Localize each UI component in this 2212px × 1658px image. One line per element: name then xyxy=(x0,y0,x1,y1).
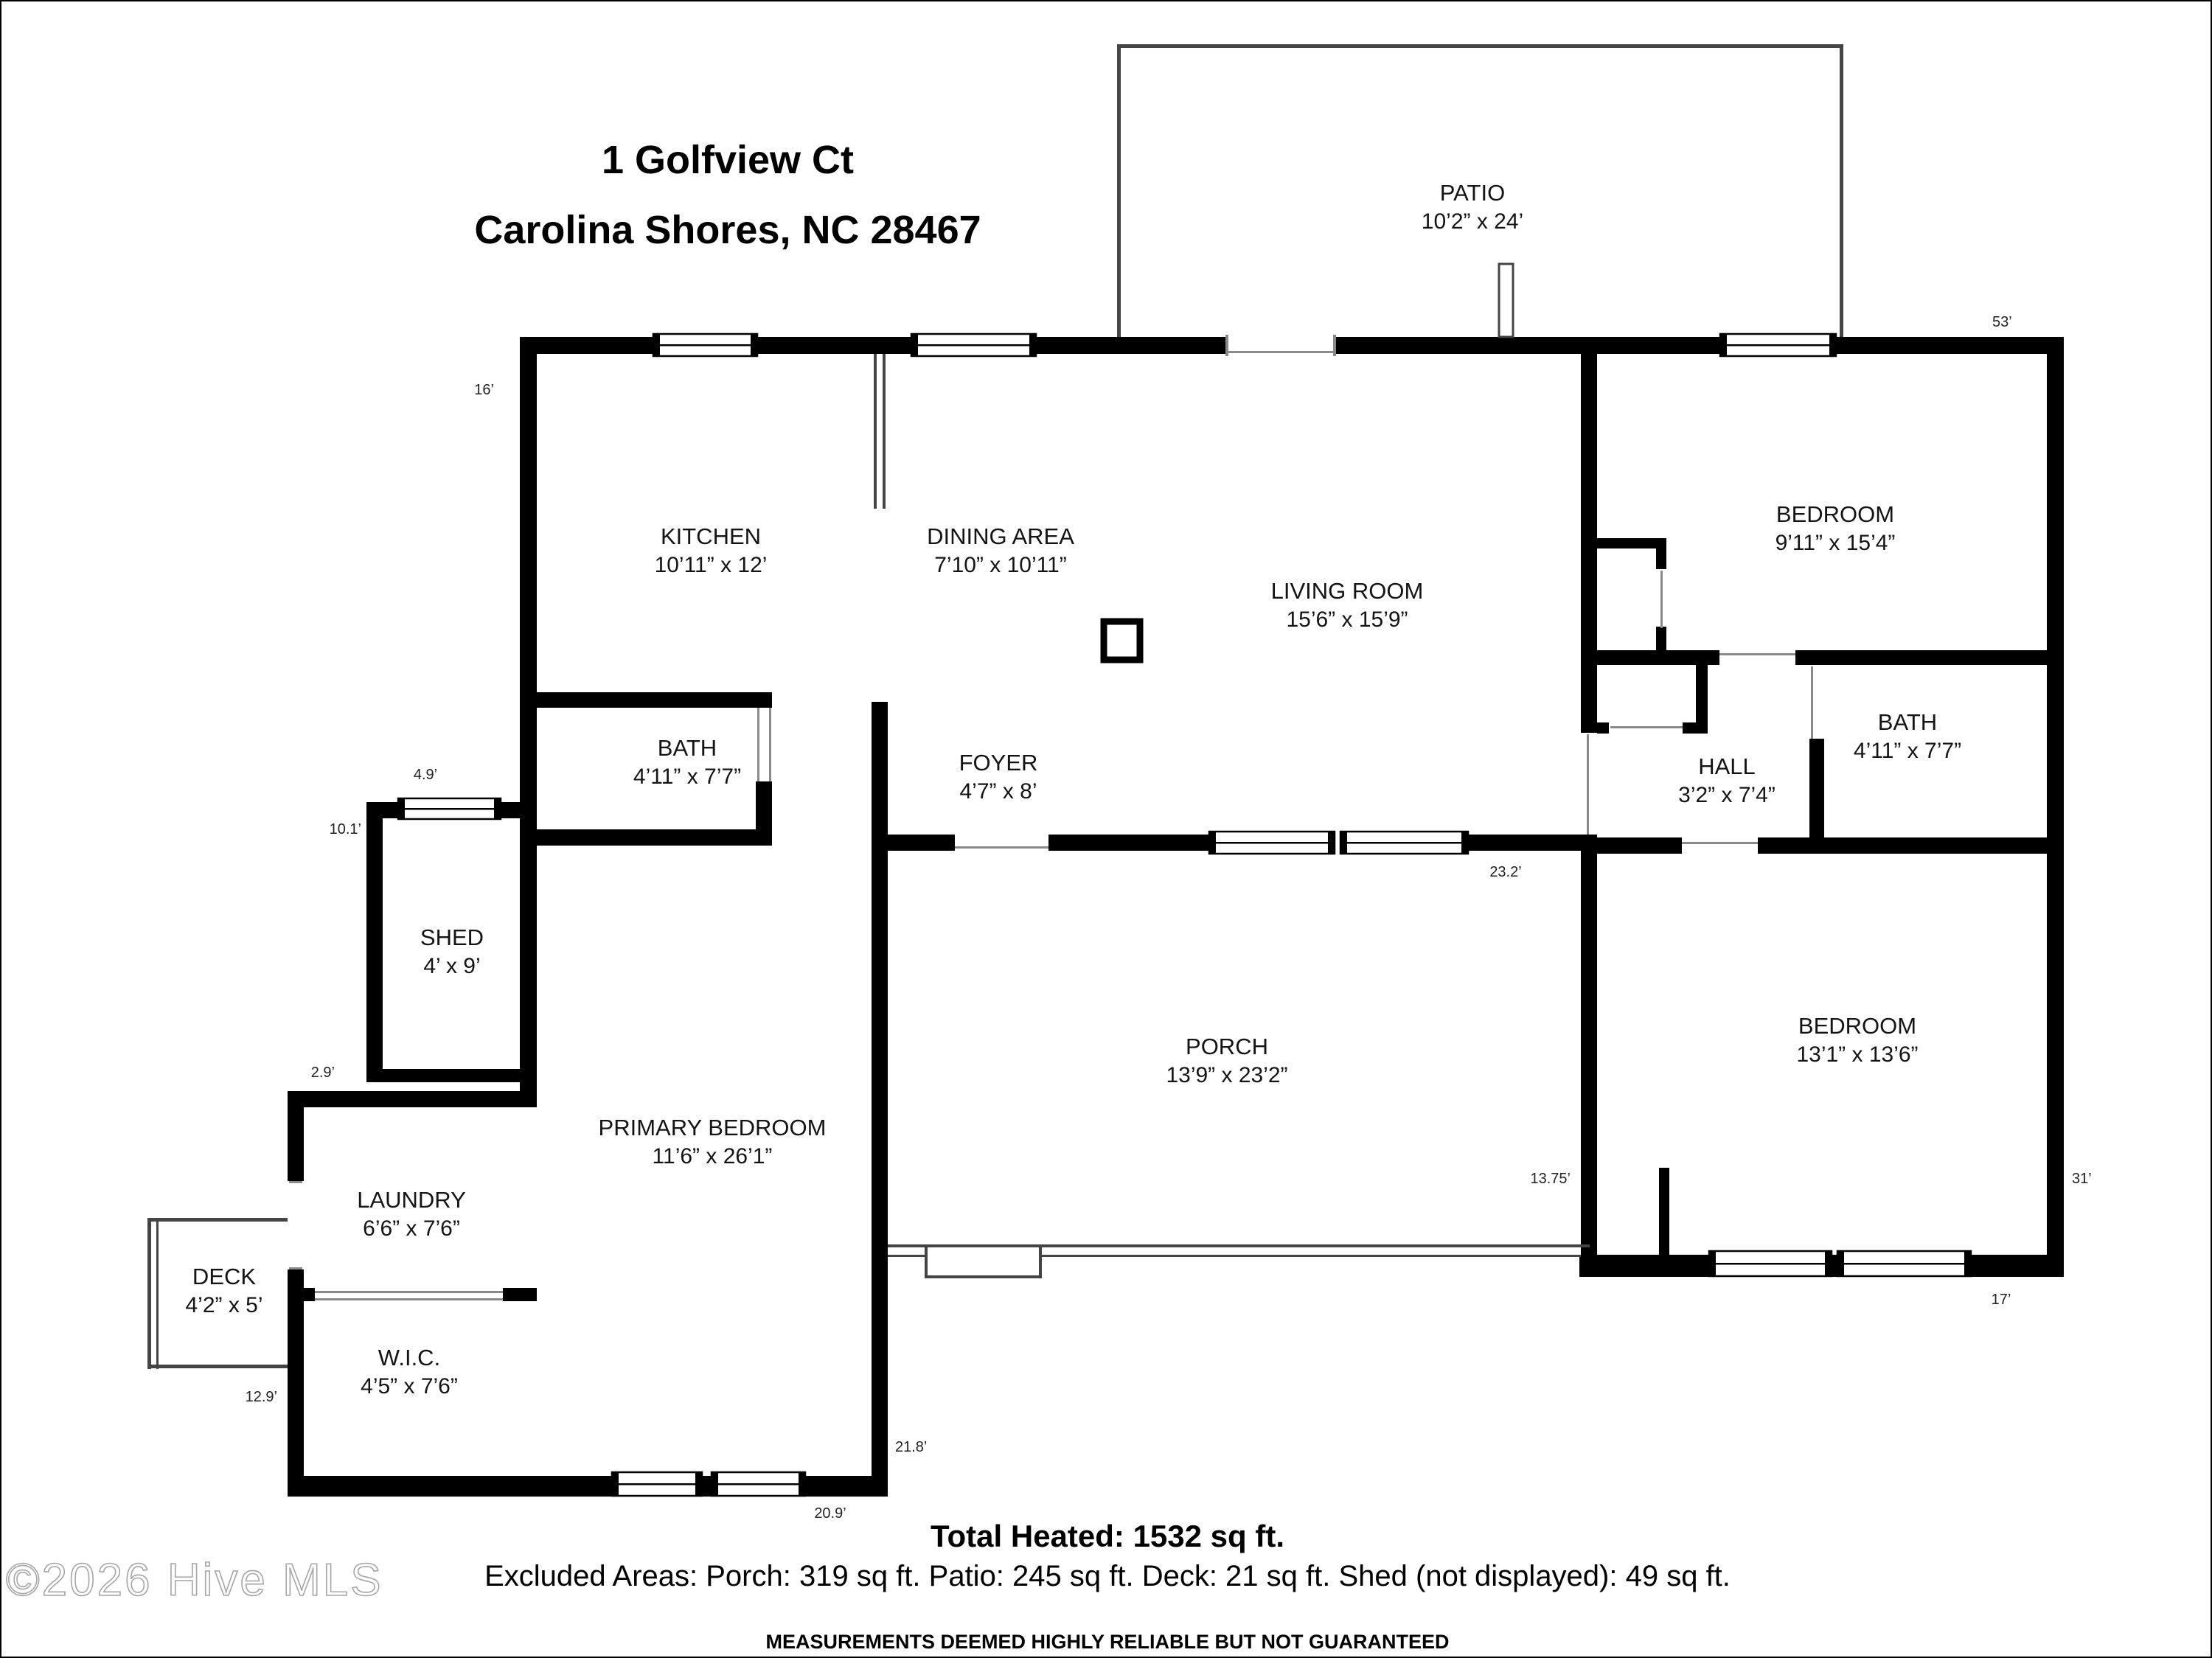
room-dimensions: 10’11” x 12’ xyxy=(655,551,768,579)
room-label-dining-area: DINING AREA7’10” x 10’11” xyxy=(927,522,1074,579)
plan-shape xyxy=(1656,538,1666,569)
plan-shape xyxy=(612,1472,619,1496)
room-name: PATIO xyxy=(1422,178,1523,208)
plan-shape xyxy=(925,1244,928,1278)
room-dimensions: 4’2” x 5’ xyxy=(185,1292,262,1320)
plan-shape xyxy=(1840,44,1843,337)
plan-shape xyxy=(619,1483,695,1485)
plan-shape xyxy=(653,334,660,356)
plan-shape xyxy=(1597,722,1609,734)
plan-shape xyxy=(289,1181,302,1183)
plan-shape xyxy=(1758,837,2047,854)
plan-shape xyxy=(1333,335,1336,356)
dimension-label-2: 4.9’ xyxy=(414,767,437,784)
plan-shape xyxy=(1347,842,1461,844)
plan-shape xyxy=(1048,835,1209,851)
total-heated-text: Total Heated: 1532 sq ft. xyxy=(1,1519,2212,1554)
dimension-label-11: 12.9’ xyxy=(246,1389,277,1406)
plan-shape xyxy=(520,829,772,846)
room-label-primary-bedroom: PRIMARY BEDROOM11’6” x 26’1” xyxy=(599,1113,827,1171)
plan-shape xyxy=(1964,1251,1971,1276)
room-label-foyer: FOYER4’7” x 8’ xyxy=(959,748,1038,806)
plan-shape xyxy=(1468,835,1597,851)
room-dimensions: 10’2” x 24’ xyxy=(1422,208,1523,236)
plan-shape xyxy=(1209,832,1216,854)
plan-shape xyxy=(288,1181,304,1269)
plan-shape xyxy=(1216,842,1328,844)
room-name: LIVING ROOM xyxy=(1271,577,1424,606)
dimension-label-3: 10.1’ xyxy=(330,821,361,838)
room-label-bath-1: BATH4’11” x 7’7” xyxy=(633,734,741,791)
plan-shape xyxy=(1597,538,1666,548)
room-dimensions: 4’7” x 8’ xyxy=(959,778,1038,806)
dimension-label-8: 17’ xyxy=(1992,1292,2011,1309)
disclaimer-text: MEASUREMENTS DEEMED HIGHLY RELIABLE BUT … xyxy=(1,1631,2212,1654)
room-dimensions: 4’11” x 7’7” xyxy=(633,763,741,791)
plan-shape xyxy=(1117,44,1843,48)
plan-shape xyxy=(503,1288,537,1301)
plan-shape xyxy=(718,1483,799,1485)
plan-shape xyxy=(520,692,772,708)
dimension-label-1: 53’ xyxy=(1992,314,2012,331)
plan-shape xyxy=(1659,1168,1669,1255)
room-dimensions: 15’6” x 15’9” xyxy=(1271,606,1424,634)
room-name: W.I.C. xyxy=(361,1343,458,1373)
room-name: BATH xyxy=(1854,708,1961,737)
address-line-1: 1 Golfview Ct xyxy=(474,125,981,195)
plan-shape xyxy=(911,334,918,356)
room-dimensions: 4’5” x 7’6” xyxy=(361,1373,458,1401)
dimension-label-9: 21.8’ xyxy=(895,1439,927,1456)
plan-shape xyxy=(918,344,1029,346)
room-label-deck: DECK4’2” x 5’ xyxy=(185,1262,262,1320)
plan-shape xyxy=(1596,837,1682,854)
dimension-label-7: 31’ xyxy=(2072,1171,2092,1188)
plan-shape xyxy=(888,1255,926,1257)
plan-shape xyxy=(955,846,1048,849)
plan-shape xyxy=(874,354,877,509)
room-dimensions: 4’11” x 7’7” xyxy=(1854,737,1961,765)
room-name: DINING AREA xyxy=(927,522,1074,551)
plan-shape xyxy=(1228,351,1333,353)
plan-shape xyxy=(1720,334,1727,356)
room-label-shed: SHED4’ x 9’ xyxy=(420,923,484,980)
plan-shape xyxy=(1499,264,1513,337)
room-label-kitchen: KITCHEN10’11” x 12’ xyxy=(655,522,768,579)
plan-shape xyxy=(757,708,759,781)
plan-shape xyxy=(1656,627,1666,650)
floor-plan-page: 1 Golfview Ct Carolina Shores, NC 28467 … xyxy=(0,0,2212,1658)
plan-shape xyxy=(1795,650,2047,665)
plan-shape xyxy=(288,1091,537,1107)
room-label-hall: HALL3’2” x 7’4” xyxy=(1678,752,1775,809)
room-name: LAUNDRY xyxy=(357,1185,466,1215)
dimension-label-0: 16’ xyxy=(474,382,494,399)
plan-shape xyxy=(1825,1251,1832,1276)
plan-shape xyxy=(398,798,405,819)
dimension-label-4: 2.9’ xyxy=(311,1065,335,1081)
room-label-porch: PORCH13’9” x 23’2” xyxy=(1166,1032,1287,1090)
plan-shape xyxy=(520,802,537,1107)
address-line-2: Carolina Shores, NC 28467 xyxy=(474,195,981,265)
plan-shape xyxy=(712,1472,718,1496)
room-name: PRIMARY BEDROOM xyxy=(599,1113,827,1143)
plan-shape xyxy=(1581,835,1597,1255)
plan-shape xyxy=(296,1288,315,1301)
plan-shape xyxy=(1716,1263,1825,1265)
room-dimensions: 9’11” x 15’4” xyxy=(1775,529,1896,557)
room-label-wic: W.I.C.4’5” x 7’6” xyxy=(361,1343,458,1401)
plan-shape xyxy=(1837,1251,1844,1276)
room-label-bedroom-2: BEDROOM13’1” x 13’6” xyxy=(1796,1011,1918,1069)
room-name: HALL xyxy=(1678,752,1775,781)
plan-shape xyxy=(147,1218,151,1369)
plan-shape xyxy=(366,1069,536,1082)
plan-shape xyxy=(883,354,886,509)
plan-shape xyxy=(1719,653,1795,655)
plan-shape xyxy=(1844,1263,1964,1265)
plan-shape xyxy=(1104,621,1140,660)
plan-shape xyxy=(751,334,757,356)
plan-shape xyxy=(1340,832,1347,854)
plan-shape xyxy=(925,1275,1042,1278)
plan-shape xyxy=(1682,842,1758,844)
plan-shape xyxy=(1587,734,1589,835)
plan-shape xyxy=(1042,1255,1581,1257)
room-dimensions: 11’6” x 26’1” xyxy=(599,1143,827,1171)
room-name: KITCHEN xyxy=(655,522,768,551)
plan-shape xyxy=(520,337,537,846)
plan-shape xyxy=(1683,722,1708,734)
plan-shape xyxy=(1225,335,1228,356)
plan-shape xyxy=(769,708,771,781)
room-label-bedroom-1: BEDROOM9’11” x 15’4” xyxy=(1775,500,1896,557)
room-label-laundry: LAUNDRY6’6” x 7’6” xyxy=(357,1185,466,1243)
plan-shape xyxy=(888,1244,1590,1247)
plan-shape xyxy=(872,702,888,1497)
plan-shape xyxy=(756,781,772,846)
plan-shape xyxy=(695,1472,702,1496)
room-name: FOYER xyxy=(959,748,1038,778)
room-dimensions: 6’6” x 7’6” xyxy=(357,1215,466,1243)
room-label-bath-2: BATH4’11” x 7’7” xyxy=(1854,708,1961,765)
room-dimensions: 3’2” x 7’4” xyxy=(1678,781,1775,809)
mls-watermark: ©2026 Hive MLS xyxy=(6,1554,383,1606)
room-name: BATH xyxy=(633,734,741,763)
plan-shape xyxy=(1029,334,1036,356)
plan-shape xyxy=(315,1298,503,1300)
plan-shape xyxy=(1328,832,1335,854)
plan-shape xyxy=(156,1218,159,1369)
plan-shape xyxy=(872,835,955,851)
room-name: BEDROOM xyxy=(1775,500,1896,529)
plan-shape xyxy=(366,802,383,1082)
room-name: PORCH xyxy=(1166,1032,1287,1062)
dimension-label-5: 23.2’ xyxy=(1489,864,1521,881)
plan-shape xyxy=(289,1267,302,1269)
plan-shape xyxy=(147,1218,288,1222)
room-dimensions: 4’ x 9’ xyxy=(420,952,484,980)
plan-shape xyxy=(1117,44,1121,337)
plan-shape xyxy=(1696,661,1708,733)
plan-shape xyxy=(1660,571,1663,628)
room-label-patio: PATIO10’2” x 24’ xyxy=(1422,178,1523,236)
plan-shape xyxy=(1811,666,1813,739)
plan-shape xyxy=(660,344,751,346)
room-dimensions: 7’10” x 10’11” xyxy=(927,551,1074,579)
plan-shape xyxy=(494,798,501,819)
plan-shape xyxy=(405,808,494,810)
dimension-label-6: 13.75’ xyxy=(1531,1171,1571,1188)
room-dimensions: 13’1” x 13’6” xyxy=(1796,1041,1918,1069)
plan-shape xyxy=(1809,739,1824,854)
room-dimensions: 13’9” x 23’2” xyxy=(1166,1062,1287,1090)
plan-shape xyxy=(2047,337,2064,1277)
room-label-living-room: LIVING ROOM15’6” x 15’9” xyxy=(1271,577,1424,634)
plan-shape xyxy=(1829,334,1836,356)
room-name: BEDROOM xyxy=(1796,1011,1918,1041)
plan-shape xyxy=(799,1472,805,1496)
plan-shape xyxy=(1610,726,1683,728)
plan-shape xyxy=(1709,1251,1716,1276)
room-name: DECK xyxy=(185,1262,262,1292)
plan-shape xyxy=(1581,353,1597,733)
room-name: SHED xyxy=(420,923,484,952)
plan-shape xyxy=(1461,832,1468,854)
property-address: 1 Golfview Ct Carolina Shores, NC 28467 xyxy=(474,125,981,265)
plan-shape xyxy=(315,1291,503,1293)
plan-shape xyxy=(1727,344,1829,346)
plan-shape xyxy=(147,1365,288,1368)
plan-shape xyxy=(1039,1244,1042,1278)
